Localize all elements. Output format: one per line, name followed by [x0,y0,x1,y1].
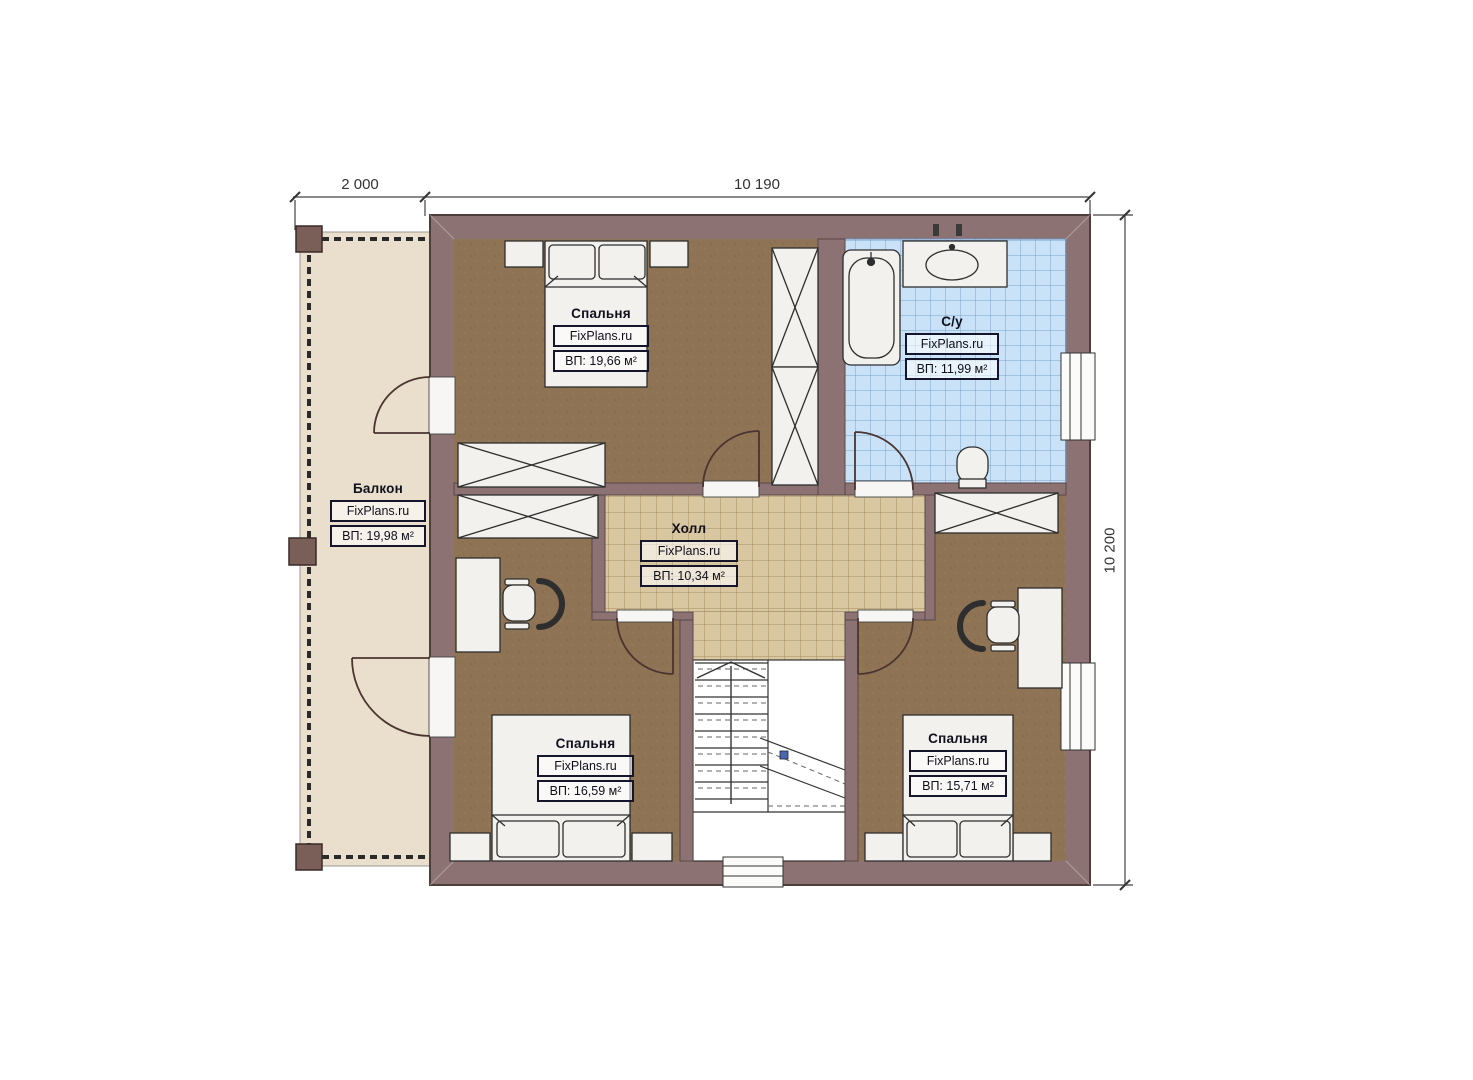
wardrobe-icon-bottom-left-bedroom [458,495,598,538]
room-label-bedroom-bottom-left: Спальня FixPlans.ru ВП: 16,59 м² [537,737,634,802]
stairs [693,660,845,861]
room-area: ВП: 19,98 м² [330,525,426,547]
room-name: Холл [640,522,738,537]
balcony [289,226,430,870]
room-brand: FixPlans.ru [537,755,634,777]
wardrobe-icon-column-lower [772,367,818,485]
room-brand: FixPlans.ru [909,750,1007,772]
room-area: ВП: 16,59 м² [537,780,634,802]
room-brand: FixPlans.ru [553,325,649,347]
room-name: Спальня [909,732,1007,747]
room-area: ВП: 10,34 м² [640,565,738,587]
floor-plan-page: Балкон FixPlans.ru ВП: 19,98 м² Спальня … [0,0,1473,1080]
room-name: Спальня [537,737,634,752]
room-label-hall: Холл FixPlans.ru ВП: 10,34 м² [640,522,738,587]
wardrobe-icon-column-upper [772,248,818,367]
room-area: ВП: 19,66 м² [553,350,649,372]
dimension-right: 10 200 [1102,506,1119,596]
desk-right [1018,588,1062,688]
dimension-top-right: 10 190 [707,176,807,193]
room-name: Балкон [330,482,426,497]
wardrobe-icon-right-bedroom [935,493,1058,533]
desk-left [456,558,500,652]
room-brand: FixPlans.ru [330,500,426,522]
window-stair-bottom [723,857,783,887]
room-brand: FixPlans.ru [905,333,999,355]
sink-icon [903,241,1007,287]
dimension-top-left: 2 000 [320,176,400,193]
window-bedroom-right [1061,663,1095,750]
window-bathroom-right [1061,353,1095,440]
wardrobe-icon-top-bedroom [458,443,605,487]
room-name: Спальня [553,307,649,322]
hall-floor-tongue [693,612,845,660]
room-name: С/у [905,315,999,330]
room-area: ВП: 15,71 м² [909,775,1007,797]
room-area: ВП: 11,99 м² [905,358,999,380]
room-brand: FixPlans.ru [640,540,738,562]
bathtub-icon [843,250,900,365]
stair-marker-dot [780,751,788,759]
room-label-bedroom-bottom-right: Спальня FixPlans.ru ВП: 15,71 м² [909,732,1007,797]
room-label-bathroom: С/у FixPlans.ru ВП: 11,99 м² [905,315,999,380]
room-label-balcony: Балкон FixPlans.ru ВП: 19,98 м² [330,482,426,547]
toilet-icon [957,447,988,488]
room-label-bedroom-top-left: Спальня FixPlans.ru ВП: 19,66 м² [553,307,649,372]
